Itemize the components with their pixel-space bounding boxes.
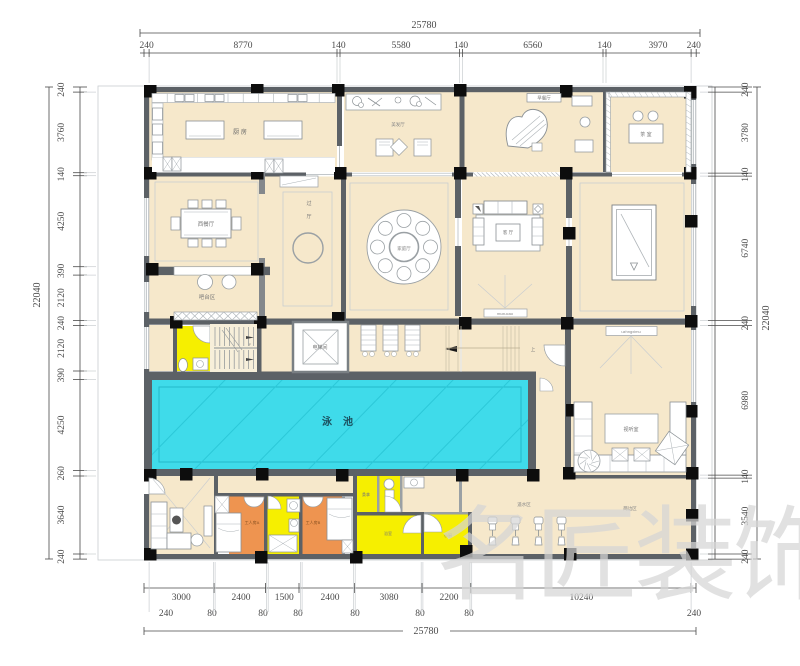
svg-text:3780: 3780 <box>741 123 751 142</box>
svg-text:25780: 25780 <box>414 626 439 637</box>
svg-text:2400: 2400 <box>321 593 340 603</box>
svg-text:2120: 2120 <box>57 288 67 307</box>
svg-text:厅: 厅 <box>306 214 311 220</box>
svg-text:240: 240 <box>57 82 67 97</box>
svg-text:厨 房: 厨 房 <box>233 128 247 136</box>
svg-text:泳池: 泳池 <box>322 415 364 428</box>
svg-text:8770: 8770 <box>234 41 253 51</box>
svg-text:140: 140 <box>454 41 469 51</box>
svg-text:2400: 2400 <box>232 593 251 603</box>
svg-text:240: 240 <box>57 316 67 331</box>
svg-text:美发厅: 美发厅 <box>391 121 405 128</box>
svg-text:3970: 3970 <box>649 41 668 51</box>
svg-text:240: 240 <box>57 549 67 564</box>
svg-text:浴室: 浴室 <box>384 530 392 536</box>
svg-text:uzhngximu: uzhngximu <box>621 329 640 334</box>
svg-text:吧台区: 吧台区 <box>199 293 216 301</box>
svg-text:工人房B: 工人房B <box>306 519 321 525</box>
svg-text:4250: 4250 <box>57 211 67 230</box>
svg-text:早餐厅: 早餐厅 <box>537 95 551 102</box>
svg-text:3000: 3000 <box>172 593 191 603</box>
svg-text:80: 80 <box>207 609 217 619</box>
svg-text:140: 140 <box>741 469 751 484</box>
svg-text:80: 80 <box>415 609 425 619</box>
svg-text:桑拿: 桑拿 <box>362 491 370 497</box>
svg-text:240: 240 <box>687 41 702 51</box>
svg-text:260: 260 <box>57 466 67 481</box>
svg-text:电梯间: 电梯间 <box>312 344 327 351</box>
svg-text:6980: 6980 <box>741 391 751 410</box>
svg-text:3080: 3080 <box>380 593 399 603</box>
svg-text:240: 240 <box>741 316 751 331</box>
svg-text:3640: 3640 <box>57 505 67 524</box>
svg-text:240: 240 <box>139 41 154 51</box>
svg-text:茶 室: 茶 室 <box>640 131 651 138</box>
svg-text:muxucao: muxucao <box>497 311 514 316</box>
svg-text:80: 80 <box>293 609 303 619</box>
svg-text:上: 上 <box>531 346 536 352</box>
svg-text:1500: 1500 <box>275 593 294 603</box>
svg-text:4250: 4250 <box>57 415 67 434</box>
svg-text:家庭厅: 家庭厅 <box>397 245 411 252</box>
svg-text:6560: 6560 <box>523 41 542 51</box>
svg-text:客 厅: 客 厅 <box>503 229 514 236</box>
svg-text:5580: 5580 <box>392 41 411 51</box>
svg-text:22040: 22040 <box>761 306 772 331</box>
svg-text:22040: 22040 <box>32 283 43 308</box>
svg-text:2120: 2120 <box>57 339 67 358</box>
svg-text:390: 390 <box>57 264 67 279</box>
svg-text:240: 240 <box>159 609 174 619</box>
svg-text:140: 140 <box>741 167 751 182</box>
svg-text:6740: 6740 <box>741 239 751 258</box>
svg-text:140: 140 <box>57 167 67 182</box>
svg-text:390: 390 <box>57 368 67 383</box>
svg-text:140: 140 <box>331 41 346 51</box>
svg-text:140: 140 <box>597 41 612 51</box>
svg-text:240: 240 <box>741 82 751 97</box>
svg-text:工人房A: 工人房A <box>245 519 260 525</box>
svg-text:西餐厅: 西餐厅 <box>198 220 215 228</box>
svg-text:25780: 25780 <box>412 20 437 31</box>
svg-text:视听室: 视听室 <box>623 426 638 433</box>
svg-text:3760: 3760 <box>57 123 67 142</box>
svg-text:名匠装饰: 名匠装饰 <box>436 498 800 613</box>
svg-text:过: 过 <box>306 200 311 207</box>
